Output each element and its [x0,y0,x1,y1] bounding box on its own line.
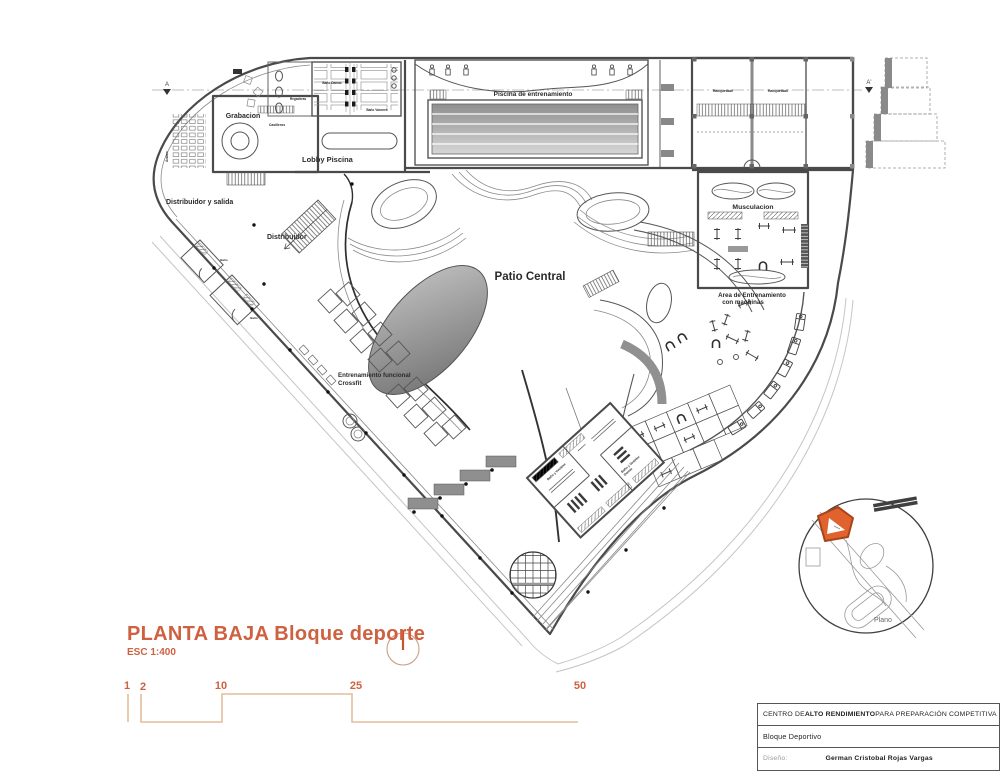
racquetball-courts: Racquetball Racquetball [692,57,855,170]
title-block: CENTRO DE ALTO RENDIMIENTO PARA PREPARAC… [757,703,1000,771]
pool-basin [432,104,638,154]
recording-booth-icon [222,123,258,159]
key-plan: Plano [799,496,933,638]
stepped-stands [866,58,945,168]
lobby-piscina-label: Lobby Piscina [302,155,354,164]
entry-steps [227,172,265,185]
anden-label: Anden [165,151,169,162]
designer-name: German Cristobal Rojas Vargas [825,755,932,762]
wide-staircase [408,456,516,514]
scale-label-50: 50 [574,680,586,692]
bano-small-label-1: Baño [220,258,228,262]
plan-scale: ESC 1:400 [127,647,176,658]
project-name-prefix: CENTRO DE [763,711,805,718]
grabacion-label: Grabacion [226,113,261,120]
title-block-designer-row: Diseño: German Cristobal Rojas Vargas [758,747,999,769]
project-name-bold: ALTO RENDIMIENTO [805,711,875,718]
casilleros-label: Casilleros [269,123,285,127]
pool-ladder-icon [626,90,642,99]
scale-label-2: 2 [140,681,146,693]
racquetball-label-1: Racquetball [713,89,733,93]
section-marker-a-prime: A' [866,80,871,86]
distribuidor-zone: Distribuidor y salida Distribuidor Baño … [166,199,336,325]
floor-plan-sheet: A A' Anden Grabacion Regaderas Casillero… [0,0,1000,776]
tire-icon [351,427,365,441]
section-marker-a-arrow-icon [163,89,171,95]
racquetball-label-2: Racquetball [768,89,788,93]
reception-desk [322,133,397,149]
drawing-title: PLANTA BAJA Bloque deporte ESC 1:400 [127,623,425,658]
pool-ladder-icon [430,90,446,99]
block-name: Bloque Deportivo [763,732,821,741]
project-name-suffix: PARA PREPARACIÓN COMPETITIVA [875,711,997,718]
room-piscina: Piscina de entrenamiento [405,60,692,168]
crossfit-label-1: Entrenamiento funcional [338,372,411,379]
room-regaderas-casilleros: Regaderas Casilleros [258,62,312,127]
piscina-label: Piscina de entrenamiento [494,91,573,98]
patio-stairs [648,232,694,246]
keyplan-label: Plano [874,617,892,624]
designer-label: Diseño: [763,755,787,762]
room-vestidores: Baño y Vestidor Baño y Vestidor Damas [527,403,664,537]
bano-small-label-2: Baño [250,316,258,320]
title-block-project-row: CENTRO DE ALTO RENDIMIENTO PARA PREPARAC… [758,704,999,725]
musculacion-label: Musculacion [732,204,773,211]
bano-damas-label: Baño Damas [322,81,342,85]
section-marker-a: A [165,82,169,88]
title-block-block-row: Bloque Deportivo [758,725,999,747]
bathrooms-block: Baño Damas Baño Varones [312,62,401,116]
floor-plan-drawing: A A' Anden Grabacion Regaderas Casillero… [0,0,1000,776]
area-maquinas-label-1: Area de Entrenamiento [718,292,786,299]
distribuidor-salida-label: Distribuidor y salida [166,199,233,206]
scale-label-10: 10 [215,680,227,692]
regaderas-label: Regaderas [290,97,307,101]
patio-central-label: Patio Central [495,271,566,283]
audience-seating: Anden [165,114,206,168]
room-grabacion: Grabacion [213,69,318,185]
scale-label-1: 1 [124,680,130,692]
room-musculacion: Musculacion Area de Entrenamiento con ma… [698,172,808,306]
bano-varones-label: Baño Varones [366,108,387,112]
plan-title: PLANTA BAJA Bloque deporte [127,623,425,645]
stairs [276,200,336,259]
skylight [508,550,558,600]
crossfit-label-2: Crossfit [338,380,361,387]
scale-label-25: 25 [350,680,362,692]
scale-bar: 1 2 10 25 50 [124,680,586,722]
structural-columns [212,182,665,594]
area-maquinas-label-2: con maquinas [722,299,764,306]
section-marker-a-prime-arrow-icon [865,87,873,93]
